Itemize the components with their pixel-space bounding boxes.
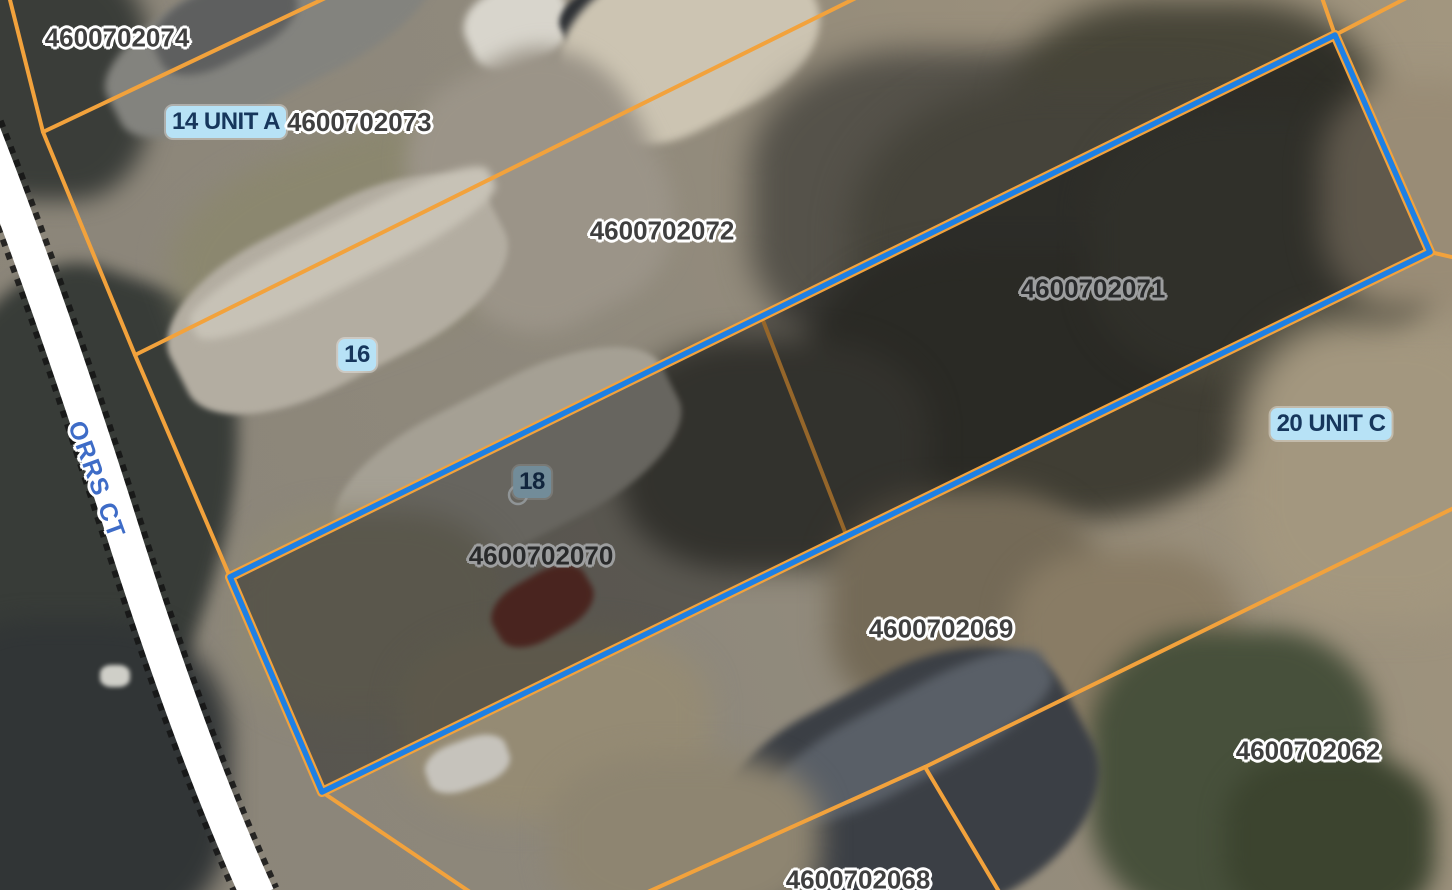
address-chip: 14 UNIT A xyxy=(166,106,286,138)
map-canvas[interactable]: 4600702074 14 UNIT A 4600702073 46007020… xyxy=(0,0,1452,890)
parcel-label: 4600702072 xyxy=(590,216,735,247)
parcel-label: 4600702068 xyxy=(786,865,931,890)
address-chip: 16 xyxy=(338,339,376,371)
parcel-label: 4600702062 xyxy=(1236,736,1381,767)
parcel-label: 4600702070 xyxy=(469,541,614,572)
parcel-label: 4600702069 xyxy=(869,614,1014,645)
parcel-label: 4600702073 xyxy=(287,107,432,138)
parcel-label: 4600702074 xyxy=(45,23,190,54)
address-parcel-label-group: 14 UNIT A 4600702073 xyxy=(166,106,432,138)
street-label: ORRS CT xyxy=(61,417,130,543)
address-chip: 20 UNIT C xyxy=(1271,408,1392,440)
address-chip: 18 xyxy=(513,466,551,498)
parcel-label: 4600702071 xyxy=(1021,274,1166,305)
